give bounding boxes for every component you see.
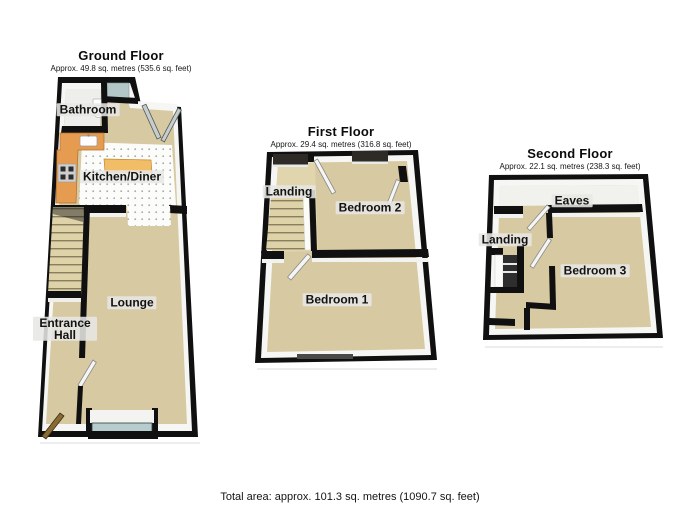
total-area-text: Total area: approx. 101.3 sq. metres (10… <box>0 491 700 503</box>
bay-bottom-wall <box>88 431 158 439</box>
room-label-landing-first: Landing <box>263 185 316 198</box>
hob-ring <box>69 167 74 172</box>
ground-floor-subtitle: Approx. 49.8 sq. metres (535.6 sq. feet) <box>51 64 192 73</box>
landing-bed2-wall-stub <box>308 155 314 162</box>
wall-face <box>494 214 523 218</box>
kitchen-lounge-wall-right <box>169 205 187 214</box>
first-floor-title: First Floor <box>308 124 374 139</box>
bathroom-bottom-wall <box>61 126 102 133</box>
sink <box>80 136 97 146</box>
closet-wall <box>524 308 530 330</box>
understairs-wall <box>47 291 81 298</box>
second-floor-title: Second Floor <box>527 146 612 161</box>
landing-window <box>273 154 308 165</box>
room-label-landing-second: Landing <box>479 233 532 246</box>
stair-rail <box>503 271 518 273</box>
ground-floor-plan <box>38 77 200 443</box>
first-floor-subtitle: Approx. 29.4 sq. metres (316.8 sq. feet) <box>271 140 412 149</box>
room-label-entrance-hall: Entrance Hall <box>33 317 97 341</box>
bedroom1-wall-left <box>261 251 284 259</box>
room-label-lounge: Lounge <box>107 296 156 309</box>
first-stairs <box>266 197 307 250</box>
wall-face <box>312 258 428 262</box>
stair-rail <box>503 263 518 265</box>
bay-window-glass <box>92 423 152 432</box>
second-floor-subtitle: Approx. 22.1 sq. metres (238.3 sq. feet) <box>500 162 641 171</box>
room-label-bedroom3: Bedroom 3 <box>561 264 630 277</box>
room-label-kitchen-diner: Kitchen/Diner <box>80 170 164 183</box>
floorplan-graphic <box>0 0 700 509</box>
wall-face <box>262 259 284 263</box>
closet-wall-bottom <box>489 318 515 326</box>
hob-ring <box>61 167 66 172</box>
room-label-eaves: Eaves <box>552 194 593 207</box>
bedroom1-wall-right <box>312 249 429 258</box>
floorplan-page: Ground Floor Approx. 49.8 sq. metres (53… <box>0 0 700 509</box>
bed3-wall-upper <box>546 213 553 238</box>
bedroom1-window <box>297 354 353 359</box>
wall-face <box>548 213 643 217</box>
stairwell-wall-top <box>489 248 503 255</box>
hob-ring <box>69 175 74 180</box>
room-label-bedroom2: Bedroom 2 <box>336 201 405 214</box>
bedroom2-window <box>352 151 388 162</box>
first-floor-plan <box>255 150 437 369</box>
sink-tap <box>87 134 89 136</box>
window-sill <box>273 165 308 168</box>
bay-wall-face <box>90 410 154 423</box>
ground-floor-title: Ground Floor <box>78 48 163 63</box>
kitchen-opening-floor <box>127 206 171 226</box>
stair-banister <box>495 255 503 287</box>
hob-ring <box>61 175 66 180</box>
eaves-wall-left <box>494 206 523 214</box>
bathroom-window <box>107 83 129 98</box>
room-label-bathroom: Bathroom <box>57 103 120 116</box>
stairwell-wall-bottom <box>489 287 524 293</box>
room-label-bedroom1: Bedroom 1 <box>303 293 372 306</box>
wall-face <box>48 298 81 302</box>
bed3-wall-lower <box>549 266 556 306</box>
window-sill <box>352 162 388 165</box>
stairwell-wall-right <box>517 245 524 287</box>
